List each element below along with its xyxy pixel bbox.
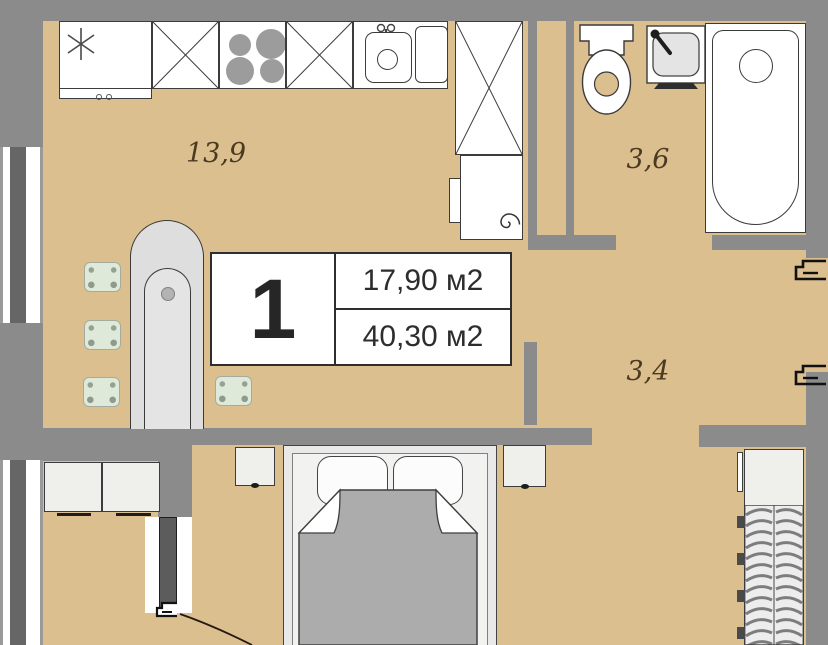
snowflake-fridge-icon bbox=[64, 26, 98, 62]
unit-number: 1 bbox=[212, 254, 336, 364]
x-cross-icon bbox=[456, 22, 522, 154]
armchair-knob-icon bbox=[161, 287, 175, 301]
stool bbox=[83, 377, 120, 407]
kitchen-cabinet-x bbox=[286, 21, 353, 89]
door-swing-icon bbox=[160, 600, 255, 645]
room-area-label-bathroom: 3,6 bbox=[610, 146, 686, 173]
knob-icon bbox=[96, 94, 102, 100]
unit-info-box: 1 17,90 м2 40,30 м2 bbox=[210, 252, 512, 366]
cabinet-handle-icon bbox=[116, 513, 151, 516]
fridge-shelf bbox=[59, 88, 152, 99]
stool bbox=[84, 320, 121, 350]
cabinet bbox=[102, 462, 160, 512]
closet-hook-icon bbox=[737, 590, 745, 602]
kitchen-sink-counter bbox=[353, 21, 448, 89]
x-cross-icon bbox=[153, 22, 218, 88]
stool bbox=[84, 262, 121, 292]
wall-shaft-cap bbox=[528, 235, 616, 250]
toilet-icon bbox=[577, 24, 636, 117]
closet-hook-icon bbox=[737, 553, 745, 565]
hanger-rail-icon bbox=[744, 505, 804, 645]
tall-cabinet-x bbox=[455, 21, 523, 155]
closet-hook-icon bbox=[737, 627, 745, 639]
spiral-heater-icon bbox=[494, 209, 522, 237]
drain-icon bbox=[377, 49, 398, 70]
window-mullion bbox=[10, 460, 26, 645]
window-left-lower bbox=[0, 460, 43, 645]
closet-bracket bbox=[737, 452, 743, 492]
closet-hook-icon bbox=[737, 516, 745, 528]
entry-door-mark-icon bbox=[794, 259, 828, 281]
knob-icon bbox=[106, 94, 112, 100]
room-area-label-hallway: 3,4 bbox=[610, 358, 686, 385]
kitchen-cabinet-x bbox=[152, 21, 219, 89]
wall-hallway-right bbox=[699, 425, 806, 447]
bed-blanket bbox=[290, 488, 488, 645]
unit-living-area: 17,90 м2 bbox=[336, 254, 510, 310]
door-leaf bbox=[159, 517, 177, 610]
entry-door-mark-icon bbox=[794, 364, 828, 386]
wall-door-jamb bbox=[158, 445, 192, 518]
cabinet-handle-icon bbox=[57, 513, 91, 516]
nightstand bbox=[235, 447, 275, 486]
wall-right-lower bbox=[806, 372, 828, 645]
window-left-upper bbox=[0, 147, 43, 323]
wall-shaft-right bbox=[566, 21, 574, 237]
washbasin-icon bbox=[646, 25, 706, 90]
cabinet bbox=[44, 462, 102, 512]
wall-right-upper bbox=[806, 0, 828, 258]
nightstand bbox=[503, 445, 546, 487]
room-area-label-living: 13,9 bbox=[170, 140, 262, 167]
unit-total-area: 40,30 м2 bbox=[336, 310, 510, 364]
wall-stub-hallway bbox=[524, 342, 537, 425]
floor-plan: 13,9 1 17,90 м2 40,30 м2 3,6 3,4 bbox=[0, 0, 828, 645]
stool bbox=[215, 376, 252, 406]
x-cross-icon bbox=[287, 22, 352, 88]
drying-rack bbox=[415, 26, 448, 83]
window-mullion bbox=[10, 147, 26, 323]
wall-left-upper bbox=[0, 0, 43, 147]
boiler-unit bbox=[460, 155, 523, 240]
sink-basin bbox=[365, 32, 412, 83]
closet-shelf bbox=[744, 449, 804, 506]
fridge bbox=[59, 21, 152, 89]
stove bbox=[219, 21, 286, 89]
wall-top bbox=[0, 0, 828, 21]
drain-icon bbox=[739, 49, 773, 83]
burner-icon bbox=[220, 22, 285, 88]
wall-shaft-left bbox=[528, 21, 537, 237]
bathtub bbox=[705, 23, 806, 233]
